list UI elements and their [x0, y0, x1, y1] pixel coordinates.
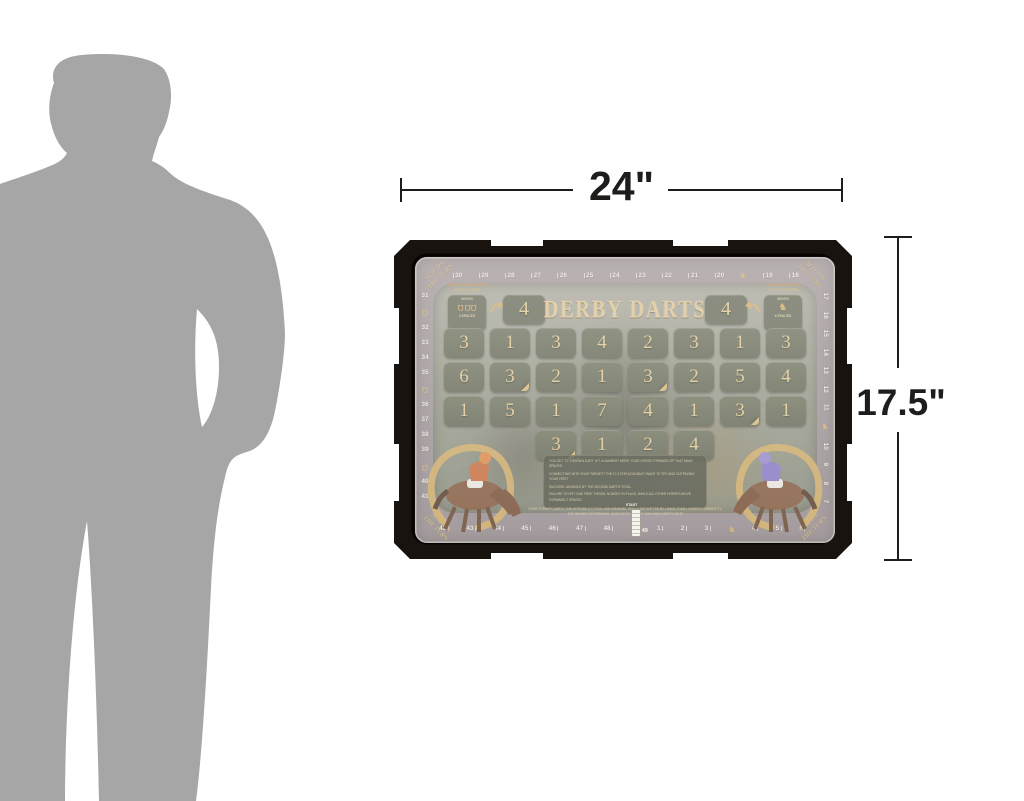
track-space-number: 19 [761, 273, 772, 280]
track-space-number: 1 [657, 526, 665, 533]
grid-cell: 1 [444, 396, 484, 426]
track-space-number: 27 [530, 273, 541, 280]
grid-cell: 2 [674, 362, 714, 392]
track-space-number: 37 [421, 417, 428, 424]
horseshoe-icon: Ω [422, 385, 428, 393]
dimension-tick [841, 178, 843, 202]
track-space-number: 13 [822, 367, 829, 374]
track-space-number: 30 [451, 273, 462, 280]
width-label: 24" [400, 163, 843, 210]
dimension-tick [884, 559, 912, 561]
track-space-number: 25 [582, 273, 593, 280]
track-space-number: 34 [421, 355, 428, 362]
grid-cell: 3 [766, 328, 806, 358]
grid-cell: 5 [720, 362, 760, 392]
footnote: YOUR CORNER CARDS: THE OPTIONS (17) TICK… [513, 507, 737, 517]
product-size-chart: 24" 17.5" SLIP ONTHE TURN SLIP ONTHE TUR… [0, 0, 1024, 801]
height-dimension: 17.5" [884, 236, 912, 561]
grid-cell: 7 [582, 396, 622, 426]
grid-cell: 1 [674, 396, 714, 426]
track-space-number: 15 [822, 330, 829, 337]
track-space-number: 36 [421, 402, 428, 409]
grid-cell: 3 [628, 362, 668, 392]
horse-jockey-right [717, 433, 829, 539]
track-space-number: 26 [556, 273, 567, 280]
track-space-number: 2 [681, 526, 689, 533]
grid-cell: 3 [536, 328, 576, 358]
track-space-number: 11 [822, 404, 829, 411]
grid-cell: 4 [628, 396, 668, 426]
grid-cell: 1 [490, 328, 530, 358]
track-space-number: 47 [576, 526, 587, 533]
powerup-right-note: THE GOLDEN HORSE GET TO THE WIN [747, 283, 819, 293]
width-dimension: 24" [400, 178, 843, 202]
powerup-left-note: YOUR POWER THROW USE ANY TIME [431, 283, 503, 293]
track-space-number: 29 [477, 273, 488, 280]
track-space-number: 18 [788, 273, 799, 280]
horse-jockey-icon: ♞ [764, 302, 802, 313]
person-silhouette [0, 53, 300, 801]
track-space-number: 12 [822, 385, 829, 392]
grid-cell: 2 [536, 362, 576, 392]
grid-cell: 2 [628, 328, 668, 358]
grid-cell: 3 [720, 396, 760, 426]
grid-cell: 6 [444, 362, 484, 392]
track-space-number: 32 [421, 325, 428, 332]
horseshoe-icon: Ω [422, 308, 428, 316]
rules-panel: YOU GET TO THROW A DART. HIT A NUMBER? M… [543, 455, 707, 509]
grid-cell: 1 [536, 396, 576, 426]
track-space-number: 48 [603, 526, 614, 533]
grid-cell: 1 [766, 396, 806, 426]
grid-row: 31342313 [444, 328, 806, 358]
track-space-number: 16 [822, 311, 829, 318]
grid-cell: 5 [490, 396, 530, 426]
dimension-line [897, 238, 899, 368]
grid-row: 63213254 [444, 362, 806, 392]
track-space-number: 20 [713, 273, 724, 280]
height-label: 17.5" [846, 382, 956, 424]
score-right: 4 [705, 295, 747, 324]
track-space-number: 22 [661, 273, 672, 280]
grid-cell: 3 [444, 328, 484, 358]
grid-row: 15174131 [444, 396, 806, 426]
start-label: START [626, 504, 637, 508]
curved-arrow-icon [743, 299, 761, 313]
track-space-number: 23 [634, 273, 645, 280]
start-number: 49 [642, 529, 648, 535]
track-space-number: 21 [687, 273, 698, 280]
track-space-number: 33 [421, 340, 428, 347]
dimension-line [668, 189, 843, 191]
track-space-number: 35 [421, 370, 428, 377]
board-face: SLIP ONTHE TURN SLIP ONTHE TURN SLIP ONT… [415, 257, 835, 543]
powerup-right-box: MOVES ♞ 6 SPACES [764, 295, 802, 330]
grid-cell: 3 [490, 362, 530, 392]
horse-icon: ♞ [821, 423, 828, 431]
dimension-line [897, 432, 899, 559]
track-space-number: 28 [503, 273, 514, 280]
horse-icon: ♞ [739, 272, 746, 280]
track-space-number: 14 [822, 348, 829, 355]
grid-cell: 3 [674, 328, 714, 358]
track-space-number: 3 [705, 526, 713, 533]
grid-cell: 1 [582, 362, 622, 392]
track-space-number: 24 [608, 273, 619, 280]
grid-cell: 4 [766, 362, 806, 392]
horse-jockey-left [421, 433, 533, 539]
track-space-number: 46 [549, 526, 560, 533]
grid-cell: 1 [720, 328, 760, 358]
infield: YOUR POWER THROW USE ANY TIME MOVES ΩΩΩ … [433, 283, 817, 513]
start-marker: START49 [631, 509, 641, 537]
grid-cell: 4 [582, 328, 622, 358]
track-top: 3029282726252423222120♞1918 [451, 270, 799, 282]
